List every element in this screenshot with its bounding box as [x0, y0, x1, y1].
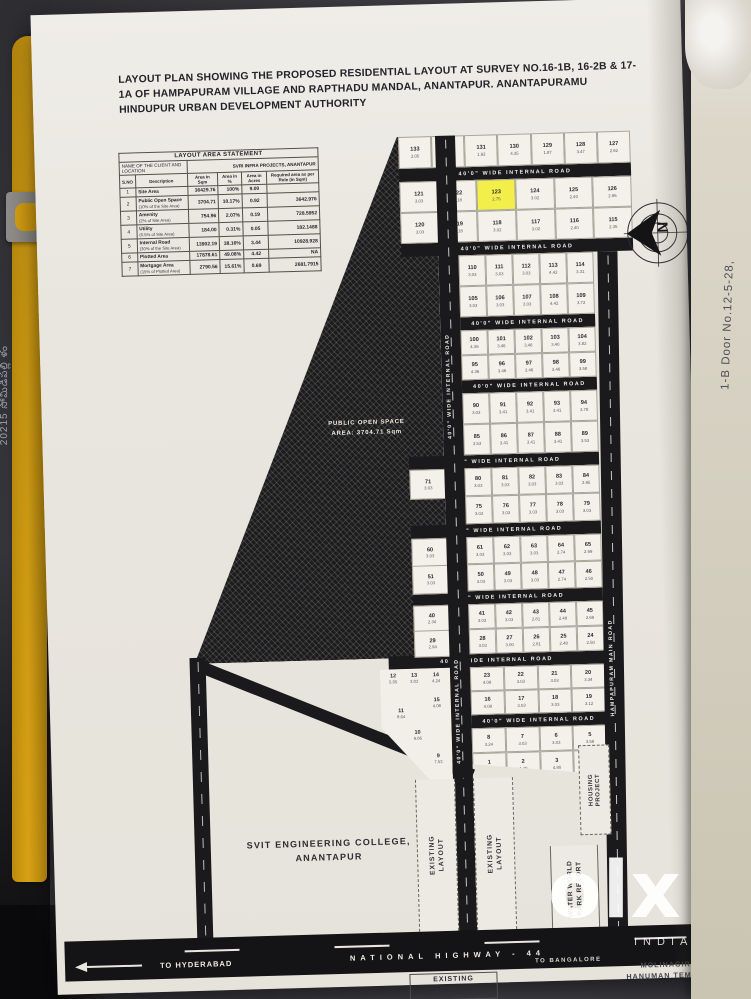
plot-60: 603.03: [411, 538, 449, 568]
plot-63: 633.03: [520, 535, 548, 563]
plot-2: 24.49: [506, 751, 540, 777]
college-label: SVIT ENGINEERING COLLEGE, ANANTAPUR: [214, 834, 445, 867]
plot-7: 73.03: [505, 726, 539, 752]
highway-name-label: NATIONAL HIGHWAY - 44: [350, 948, 545, 962]
plot-40: 402.34: [413, 605, 451, 633]
plot-18: 183.03: [538, 688, 572, 713]
plot-1: 13.24: [472, 752, 506, 778]
plot-21: 213.03: [537, 664, 571, 689]
plot-84: 842.95: [572, 465, 600, 494]
plot-65: 652.69: [574, 534, 602, 562]
diagonal-plot-block: 125.05133.03144.24154.08118.64109.0697.5…: [380, 668, 453, 782]
plot-24: 242.50: [577, 625, 605, 651]
plot-43: 432.81: [522, 602, 550, 628]
plot-76: 763.03: [492, 495, 520, 524]
plot-106: 1063.03: [486, 285, 514, 317]
plot-block: 234.08 223.03 213.03 203.34 164.08 173.0…: [470, 663, 606, 715]
plot-51: 513.03: [412, 565, 450, 595]
plot-86: 863.41: [490, 423, 518, 455]
plot-44: 442.48: [549, 601, 577, 627]
plot-23: 234.08: [470, 666, 504, 691]
plot-105: 1053.03: [459, 286, 487, 318]
plot-78: 783.03: [546, 493, 574, 522]
plot-128: 1283.47: [564, 131, 598, 164]
plot-41: 413.03: [468, 604, 496, 630]
to-hyderabad-arrow-tail: [87, 965, 142, 968]
plot-row: 1053.03 1063.03 1073.03 1084.42 1093.72: [459, 283, 595, 318]
plot-117: 1173.02: [516, 209, 556, 241]
plot-120: 1203.03: [400, 212, 440, 244]
plot-25: 252.48: [550, 626, 578, 652]
plot-49: 493.03: [494, 563, 522, 591]
plot-101: 1013.46: [487, 329, 515, 355]
plot-17: 173.03: [504, 689, 538, 714]
plot-81: 813.03: [491, 467, 519, 496]
plot-14: 144.24: [426, 673, 446, 684]
plot-12: 125.05: [383, 674, 403, 685]
plot-64: 642.74: [547, 534, 575, 562]
plot-row: 954.36 963.46 973.46 983.46 993.58: [461, 352, 597, 381]
internal-road-label: 40'0" WIDE INTERNAL ROAD: [459, 168, 572, 177]
plot-blocks-group: 1332.05 1321.86 1311.92 1304.35 1291.87 …: [30, 0, 680, 15]
plot-133: 1332.05: [398, 136, 432, 169]
plot-block: 1213.03 1223.18 1232.75 1243.02 1252.40 …: [399, 176, 633, 244]
internal-road-label: 40'0" WIDE INTERNAL ROAD: [451, 592, 564, 601]
plot-97: 973.46: [515, 353, 543, 379]
olx-logo: olx: [548, 852, 682, 930]
plot-92: 923.41: [516, 391, 544, 423]
plot-block: 1332.05 1321.86 1311.92 1304.35 1291.87 …: [398, 131, 631, 169]
plot-42: 423.03: [495, 603, 523, 629]
plot-87: 873.41: [517, 422, 545, 454]
plot-block: 613.03 623.03 633.03 642.74 652.69 503.0…: [466, 534, 602, 592]
plot-127: 1272.62: [597, 131, 631, 164]
plot-79: 793.03: [573, 493, 601, 522]
plot-116: 1162.40: [555, 208, 595, 240]
plot-27: 273.00: [496, 628, 524, 654]
internal-road-label: 40'0" WIDE INTERNAL ROAD: [473, 380, 586, 389]
plot-26: 262.81: [523, 627, 551, 653]
college-side-road: [189, 658, 213, 948]
north-compass-icon: N: [622, 197, 694, 269]
plot-row: 283.03 273.00 262.81 252.48 242.50: [469, 625, 605, 654]
plot-100: 1004.36: [460, 330, 488, 356]
plot-80: 803.03: [464, 468, 492, 497]
internal-road-label: 40'0" WIDE INTERNAL ROAD: [482, 715, 595, 724]
plot-125: 1252.40: [554, 177, 594, 209]
to-hyderabad-arrow-icon: [75, 962, 87, 972]
internal-road-label: 40'0" WIDE INTERNAL ROAD: [448, 456, 561, 465]
plot-row: 503.03 493.03 483.03 472.74 462.50: [467, 561, 603, 592]
plot-96: 963.46: [488, 354, 516, 380]
plot-row: 753.03 763.03 773.03 783.03 793.03: [465, 493, 601, 525]
existing-layout-bottom-label: EXISTING LAYOUT: [409, 972, 498, 999]
plot-10: 109.06: [408, 730, 428, 741]
plot-3: 34.80: [540, 750, 574, 776]
background-right-papers: [691, 0, 751, 999]
plot-9: 97.53: [428, 754, 448, 765]
plot-block: 1103.03 1113.03 1123.03 1134.42 1143.31 …: [458, 252, 595, 318]
plot-112: 1123.03: [512, 253, 540, 285]
internal-roads-group: 40'0" WIDE INTERNAL ROAD40'0" WIDE INTER…: [30, 0, 680, 15]
plot-29: 292.94: [414, 630, 452, 658]
to-hyderabad-label: TO HYDERABAD: [160, 959, 233, 970]
plot-20: 203.34: [571, 663, 605, 688]
plot-83: 833.03: [545, 465, 573, 494]
housing-project: HOUSINGPROJECT: [578, 744, 612, 835]
plot-111: 1113.03: [485, 254, 513, 286]
plot-row: 1203.03 1193.18 1183.02 1173.02 1162.40 …: [400, 207, 633, 244]
plot-95: 954.36: [461, 355, 489, 381]
olx-india-label: INDIA: [634, 936, 693, 948]
existing-layout-strip-left: EXISTINGLAYOUT: [415, 779, 459, 932]
plot-row: 1103.03 1113.03 1123.03 1134.42 1143.31: [458, 252, 594, 287]
plot-94: 943.78: [570, 390, 598, 422]
plot-124: 1243.02: [515, 178, 555, 210]
plot-15: 154.08: [427, 698, 447, 709]
plot-109: 1093.72: [567, 283, 595, 315]
plot-block: 903.03 913.41 923.41 933.41 943.78 853.5…: [462, 390, 599, 456]
plot-102: 1023.46: [514, 328, 542, 354]
plot-block: 1004.36 1013.46 1023.46 1033.40 1043.82 …: [460, 327, 596, 381]
plot-75: 753.03: [465, 496, 493, 525]
plot-11: 118.64: [391, 709, 411, 720]
internal-road-label: 40'0" WIDE INTERNAL ROAD: [461, 243, 574, 252]
plot-108: 1084.42: [540, 283, 568, 315]
plot-85: 853.53: [463, 424, 491, 456]
plot-129: 1291.87: [530, 132, 564, 165]
plot-71: 713.03: [409, 469, 447, 500]
plot-114: 1143.31: [566, 252, 594, 284]
plot-50: 503.03: [467, 564, 495, 592]
plot-93: 933.41: [543, 390, 571, 422]
plot-131: 1311.92: [464, 134, 498, 167]
plot-62: 623.03: [493, 536, 521, 564]
plot-45: 452.69: [576, 601, 604, 627]
plot-row: 413.03 423.03 432.81 442.48 452.69: [468, 601, 604, 630]
plot-block: 803.03 813.03 823.03 833.03 842.95 753.0…: [464, 465, 601, 525]
plot-row: 613.03 623.03 633.03 642.74 652.69: [466, 534, 602, 565]
plot-46: 462.50: [575, 561, 603, 589]
to-bangalore-label: TO BANGALORE: [535, 957, 602, 965]
plot-91: 913.41: [489, 392, 517, 424]
plot-88: 883.41: [544, 421, 572, 453]
plot-row: 1332.05 1321.86 1311.92 1304.35 1291.87 …: [398, 131, 631, 169]
plot-77: 773.03: [519, 494, 547, 523]
plot-13: 133.03: [404, 674, 424, 685]
existing-layout-strip-right: EXISTINGLAYOUT: [473, 777, 517, 930]
plot-row: 903.03 913.41 923.41 933.41 943.78: [462, 390, 598, 425]
plot-118: 1183.02: [477, 210, 517, 242]
plot-103: 1033.40: [541, 327, 569, 353]
plot-47: 472.74: [548, 561, 576, 589]
left-margin-vertical-text: 20215 సోమిడిపల్లి ళం: [0, 345, 12, 445]
plot-61: 613.03: [466, 537, 494, 565]
plot-8: 83.24: [472, 727, 506, 753]
plot-110: 1103.03: [458, 255, 486, 287]
plot-row: 803.03 813.03 823.03 833.03 842.95: [464, 465, 600, 497]
plot-99: 993.58: [569, 352, 597, 378]
plot-107: 1073.03: [513, 284, 541, 316]
svg-text:N: N: [654, 222, 671, 233]
plot-104: 1043.82: [568, 327, 596, 353]
plot-row: 1004.36 1013.46 1023.46 1033.40 1043.82: [460, 327, 596, 356]
plot-130: 1304.35: [497, 133, 531, 166]
plot-121: 1213.03: [399, 181, 439, 213]
plot-16: 164.08: [470, 690, 504, 715]
photo-of-layout-plan: 20215 సోమిడిపల్లి ళం LAYOUT PLAN SHOWING…: [0, 0, 751, 999]
plot-98: 983.46: [542, 352, 570, 378]
layout-area-statement-table: LAYOUT AREA STATEMENT NAME OF THE CLIENT…: [118, 147, 321, 277]
internal-road-label: 40'0" WIDE INTERNAL ROAD: [450, 525, 563, 534]
plot-row: 853.53 863.41 873.41 883.41 893.53: [463, 421, 599, 456]
plot-48: 483.03: [521, 562, 549, 590]
plot-89: 893.53: [571, 421, 599, 453]
plot-82: 823.03: [518, 466, 546, 495]
plot-6: 63.03: [539, 725, 573, 751]
plan-title: LAYOUT PLAN SHOWING THE PROPOSED RESIDEN…: [118, 58, 639, 118]
plot-22: 223.03: [504, 665, 538, 690]
plot-123: 1232.75: [477, 179, 517, 211]
plot-113: 1134.42: [539, 252, 567, 284]
internal-road-label: 40'0" WIDE INTERNAL ROAD: [471, 317, 584, 326]
highway-center-dashes: [185, 936, 687, 952]
plot-90: 903.03: [462, 393, 490, 425]
plot-28: 283.03: [469, 629, 497, 655]
plot-row: 164.08 173.03 183.03 193.12: [470, 687, 606, 715]
open-space-label: PUBLIC OPEN SPACE AREA: 3704.71 Sqm: [328, 418, 405, 439]
plot-block: 413.03 423.03 432.81 442.48 452.69 283.0…: [468, 601, 604, 655]
plot-19: 193.12: [572, 687, 606, 712]
olx-watermark: olx INDIA: [548, 852, 682, 930]
